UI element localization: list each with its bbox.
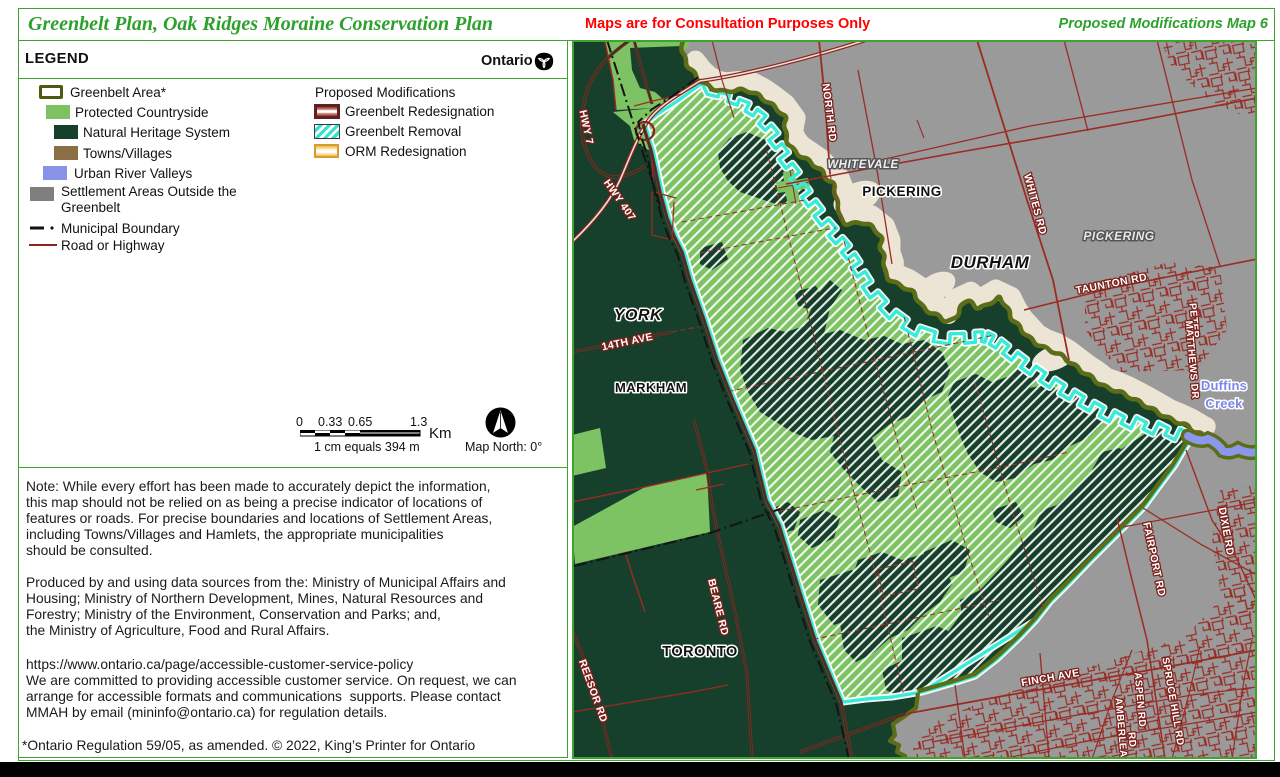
svg-text:PICKERING: PICKERING xyxy=(862,184,942,199)
svg-text:Duffins: Duffins xyxy=(1201,378,1247,393)
svg-text:PICKERING: PICKERING xyxy=(1083,229,1154,243)
svg-text:RD: RD xyxy=(1125,732,1137,748)
svg-text:WHITEVALE: WHITEVALE xyxy=(827,159,898,171)
svg-text:DURHAM: DURHAM xyxy=(951,253,1030,272)
svg-text:MARKHAM: MARKHAM xyxy=(615,380,687,395)
svg-text:TORONTO: TORONTO xyxy=(662,644,737,660)
svg-text:Creek: Creek xyxy=(1205,396,1243,411)
svg-text:YORK: YORK xyxy=(614,307,663,324)
